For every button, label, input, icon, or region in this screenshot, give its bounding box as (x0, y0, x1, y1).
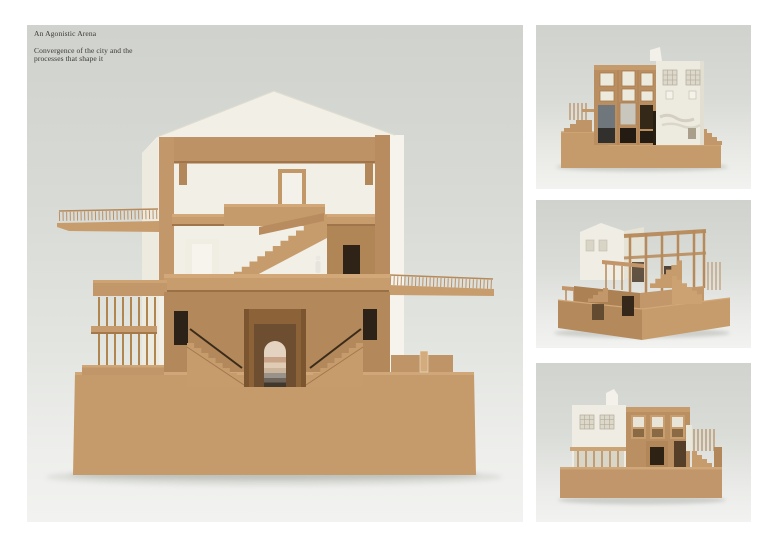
thumb3-model-illustration (536, 363, 751, 522)
page-title: An Agonistic Arena (34, 30, 133, 38)
page-subtitle-line2: processes that shape it (34, 55, 133, 63)
main-model-illustration (27, 25, 523, 522)
main-model-photo (27, 25, 523, 522)
thumbnail-photo-3 (536, 363, 751, 522)
thumbnail-photo-1 (536, 25, 751, 189)
portfolio-page: An Agonistic Arena Convergence of the ci… (0, 0, 780, 551)
thumb1-model-illustration (536, 25, 751, 189)
thumb2-model-illustration (536, 200, 751, 348)
thumbnail-photo-2 (536, 200, 751, 348)
caption-block: An Agonistic Arena Convergence of the ci… (34, 30, 133, 62)
